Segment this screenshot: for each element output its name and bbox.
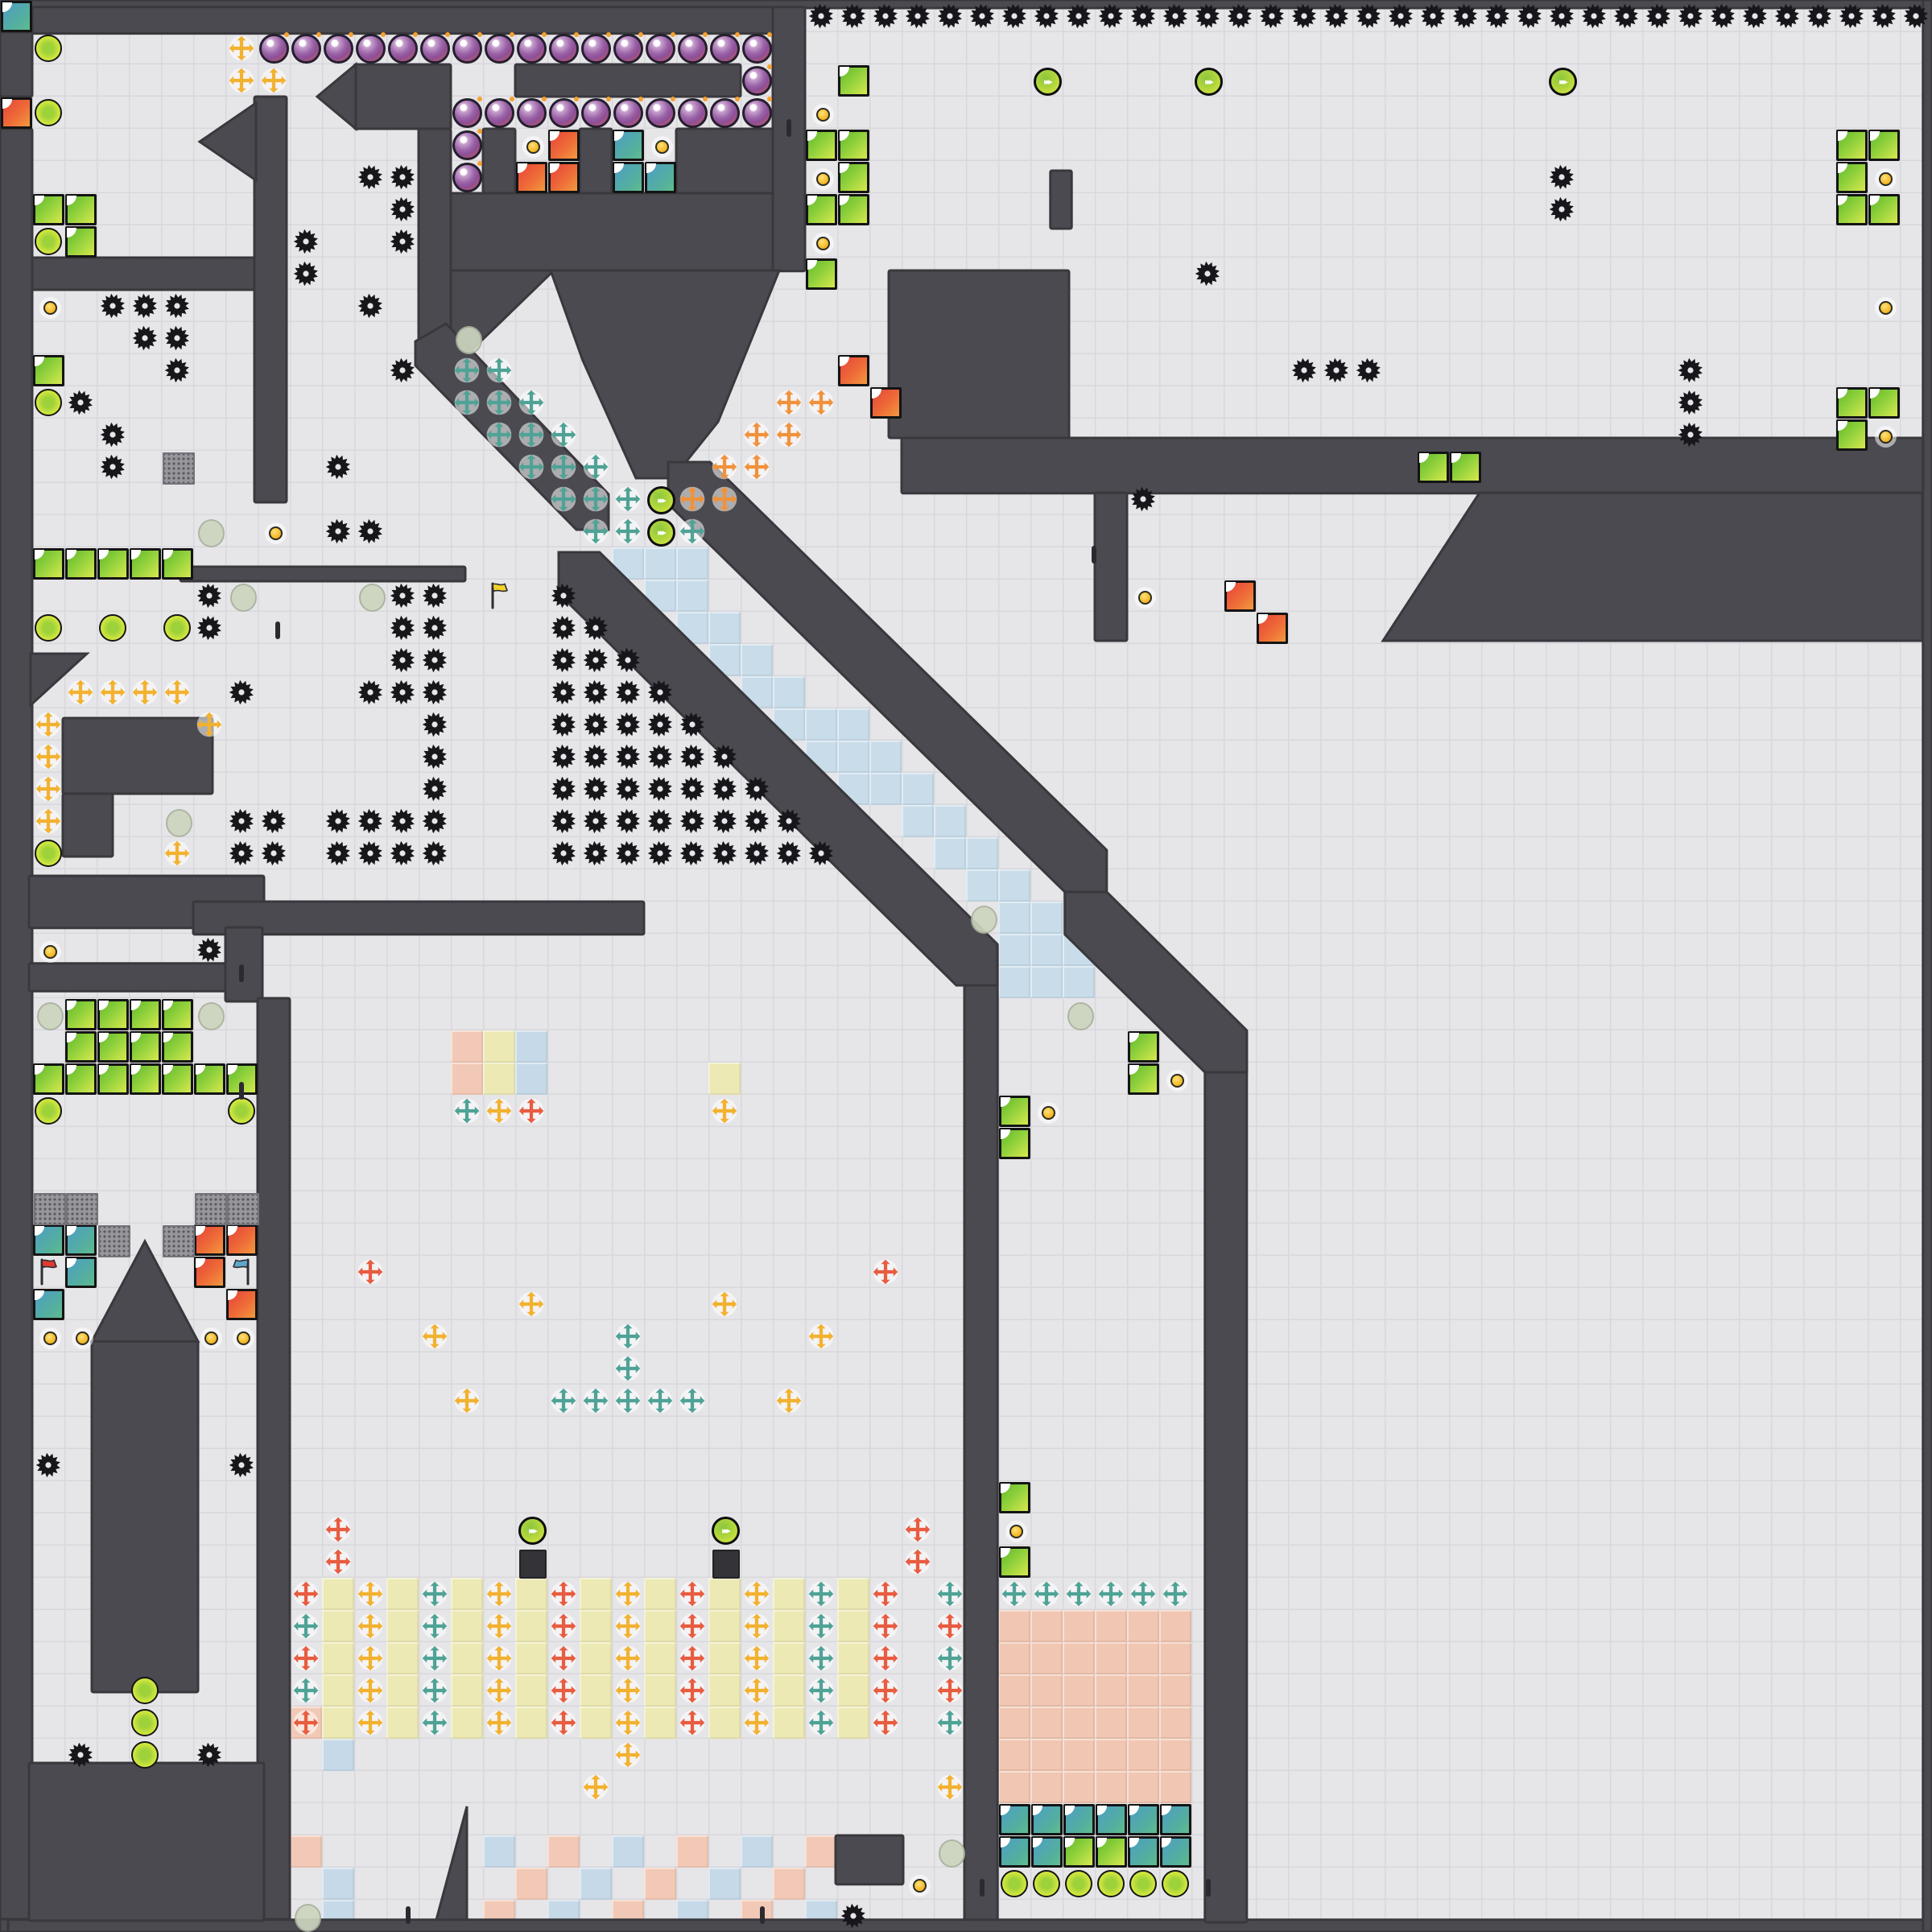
saw-blade-icon — [1290, 356, 1319, 385]
coin-dot — [1879, 430, 1893, 444]
move-cross-orange-icon — [775, 389, 803, 416]
green-block — [999, 1482, 1030, 1513]
bomb-icon — [678, 34, 708, 64]
move-cross-orange-icon — [711, 485, 738, 513]
move-cross-red-icon — [357, 1258, 384, 1286]
move-cross-yellow-icon — [485, 1097, 513, 1125]
saw-blade-icon — [1322, 2, 1351, 31]
saw-blade-icon — [420, 581, 449, 610]
move-cross-yellow-icon — [775, 1387, 803, 1414]
saw-blade-icon — [259, 807, 288, 836]
saw-blade-icon — [613, 742, 642, 771]
saw-blade-icon — [1193, 259, 1222, 288]
stone-block — [519, 1550, 547, 1579]
saw-blade-icon — [646, 839, 675, 868]
bomb-icon — [549, 98, 579, 128]
move-cross-orange-icon — [807, 389, 835, 416]
bomb-icon — [710, 98, 740, 128]
green-block — [1836, 194, 1868, 225]
move-cross-yellow-icon — [614, 1741, 642, 1769]
gold-orb — [1162, 1870, 1189, 1897]
gold-orb — [35, 228, 62, 255]
saw-blade-icon — [807, 2, 836, 31]
teal-block — [65, 1224, 97, 1256]
saw-blade-icon — [1354, 356, 1383, 385]
move-cross-yellow-icon — [163, 679, 191, 706]
move-cross-teal-icon — [679, 518, 706, 545]
green-block — [130, 1063, 161, 1095]
saw-blade-icon — [227, 807, 256, 836]
green-block — [162, 1031, 193, 1063]
coin-dot — [43, 1331, 57, 1345]
move-cross-red-icon — [550, 1580, 577, 1608]
green-block — [838, 162, 869, 193]
move-cross-teal-icon — [518, 453, 545, 481]
saw-blade-icon — [581, 678, 610, 707]
green-block — [33, 1063, 64, 1095]
green-block — [162, 1063, 193, 1095]
bomb-icon — [324, 34, 353, 64]
coin-dot — [1879, 301, 1893, 315]
door-slit — [1092, 546, 1096, 563]
door-slit — [239, 964, 244, 982]
saw-blade-icon — [646, 807, 675, 836]
grate-block — [98, 1225, 130, 1257]
saw-blade-icon — [356, 163, 385, 192]
move-cross-yellow-icon — [357, 1580, 384, 1608]
move-cross-yellow-icon — [228, 35, 255, 62]
move-cross-teal-icon — [421, 1709, 448, 1736]
green-block — [65, 1031, 97, 1063]
saw-blade-icon — [227, 678, 256, 707]
red-block — [1, 97, 32, 129]
green-block — [130, 548, 161, 580]
move-cross-yellow-icon — [614, 1645, 642, 1672]
ghost-orb — [37, 1002, 64, 1030]
level-map: ▸▸▸▸▸▸▸▸▸▸▸▸▸▸▸▸▸▸▸▸▸ — [0, 0, 1932, 1932]
move-cross-teal-icon — [582, 453, 609, 481]
saw-blade-icon — [420, 646, 449, 675]
saw-blade-icon — [549, 678, 578, 707]
move-cross-yellow-icon — [67, 679, 94, 706]
green-block — [130, 999, 161, 1030]
bomb-icon — [549, 34, 579, 64]
green-block — [97, 1063, 129, 1095]
saw-blade-icon — [420, 710, 449, 739]
move-cross-teal-icon — [1129, 1580, 1157, 1608]
coin-dot — [204, 1331, 218, 1345]
green-block — [1418, 452, 1449, 483]
red-flag-icon — [32, 1256, 64, 1288]
green-block — [999, 1128, 1030, 1159]
saw-blade-icon — [1354, 2, 1383, 31]
door-slit — [786, 119, 791, 137]
green-block — [806, 258, 837, 290]
saw-blade-icon — [1676, 388, 1705, 417]
grate-block — [195, 1193, 227, 1225]
green-block — [999, 1546, 1030, 1578]
move-cross-red-icon — [518, 1097, 545, 1125]
move-cross-red-icon — [550, 1612, 577, 1640]
move-cross-teal-icon — [453, 389, 481, 416]
saw-blade-icon — [1064, 2, 1093, 31]
teal-block — [1128, 1804, 1159, 1835]
saw-blade-icon — [1773, 2, 1802, 31]
coin-dot — [526, 140, 540, 154]
saw-blade-icon — [742, 839, 771, 868]
saw-blade-icon — [935, 2, 964, 31]
move-cross-teal-icon — [936, 1645, 964, 1672]
move-cross-teal-icon — [807, 1709, 835, 1736]
move-cross-teal-icon — [582, 1387, 609, 1414]
blue-flag-icon — [225, 1256, 258, 1288]
saw-blade-icon — [98, 420, 127, 449]
move-cross-teal-icon — [614, 1323, 642, 1350]
saw-blade-icon — [420, 613, 449, 642]
bomb-icon — [742, 98, 772, 128]
saw-blade-icon — [356, 517, 385, 546]
grate-block — [163, 1225, 195, 1257]
gold-orb — [131, 1741, 159, 1769]
saw-blade-icon — [1547, 2, 1576, 31]
green-block — [1128, 1031, 1159, 1063]
bomb-icon — [581, 34, 611, 64]
gold-orb — [1129, 1870, 1157, 1897]
move-cross-yellow-icon — [743, 1612, 770, 1640]
saw-blade-icon — [678, 839, 707, 868]
saw-blade-icon — [549, 710, 578, 739]
saw-blade-icon — [678, 774, 707, 803]
saw-blade-icon — [388, 227, 417, 256]
move-cross-yellow-icon — [936, 1773, 964, 1801]
saw-blade-icon — [356, 839, 385, 868]
coin-dot — [816, 172, 830, 186]
teal-block — [613, 162, 644, 193]
saw-blade-icon — [678, 807, 707, 836]
move-cross-yellow-icon — [357, 1612, 384, 1640]
red-block — [1257, 613, 1288, 644]
saw-blade-icon — [259, 839, 288, 868]
teal-block — [65, 1257, 97, 1288]
teal-block — [1, 1, 32, 32]
saw-blade-icon — [1869, 2, 1898, 31]
move-cross-yellow-icon — [614, 1580, 642, 1608]
teal-block — [1160, 1804, 1191, 1835]
saw-blade-icon — [324, 839, 353, 868]
coin-dot — [1170, 1074, 1184, 1088]
saw-blade-icon — [163, 291, 192, 320]
move-cross-teal-icon — [453, 357, 481, 384]
ghost-orb — [198, 519, 225, 547]
move-cross-red-icon — [324, 1516, 352, 1543]
saw-blade-icon — [549, 613, 578, 642]
green-block — [1836, 130, 1868, 161]
teal-block — [1160, 1836, 1191, 1868]
move-cross-red-icon — [872, 1612, 899, 1640]
move-cross-orange-icon — [679, 485, 706, 513]
saw-blade-icon — [1032, 2, 1061, 31]
green-block — [1836, 162, 1868, 193]
saw-blade-icon — [356, 807, 385, 836]
saw-blade-icon — [581, 710, 610, 739]
saw-blade-icon — [839, 2, 868, 31]
move-cross-teal-icon — [614, 485, 642, 513]
gold-orb — [35, 35, 62, 62]
green-block — [65, 548, 97, 580]
saw-blade-icon — [1418, 2, 1447, 31]
saw-blade-icon — [549, 774, 578, 803]
move-cross-red-icon — [904, 1516, 931, 1543]
saw-blade-icon — [420, 742, 449, 771]
saw-blade-icon — [98, 452, 127, 481]
saw-blade-icon — [66, 388, 95, 417]
coin-dot — [76, 1331, 89, 1345]
move-cross-teal-icon — [550, 421, 577, 448]
saw-blade-icon — [613, 678, 642, 707]
green-block — [130, 1031, 161, 1063]
move-cross-teal-icon — [421, 1645, 448, 1672]
move-cross-yellow-icon — [35, 807, 62, 835]
game-screenshot: ▸▸▸▸▸▸▸▸▸▸▸▸▸▸▸▸▸▸▸▸▸ — [0, 0, 1932, 1932]
saw-blade-icon — [581, 742, 610, 771]
green-block — [1063, 1836, 1095, 1868]
green-block — [1868, 387, 1900, 419]
saw-blade-icon — [678, 710, 707, 739]
saw-blade-icon — [163, 324, 192, 353]
bomb-icon — [485, 34, 514, 64]
saw-blade-icon — [1740, 2, 1769, 31]
move-cross-yellow-icon — [35, 711, 62, 738]
green-block — [97, 999, 129, 1030]
move-cross-teal-icon — [1001, 1580, 1028, 1608]
teal-block — [645, 162, 676, 193]
saw-blade-icon — [710, 807, 739, 836]
move-cross-red-icon — [679, 1612, 706, 1640]
ghost-orb — [456, 326, 482, 354]
saw-blade-icon — [388, 807, 417, 836]
saw-blade-icon — [613, 646, 642, 675]
green-block — [65, 999, 97, 1030]
saw-blade-icon — [388, 356, 417, 385]
ghost-orb — [359, 584, 386, 612]
green-block — [33, 194, 64, 225]
move-cross-red-icon — [872, 1709, 899, 1736]
move-cross-orange-icon — [711, 453, 738, 481]
coin-dot — [655, 140, 669, 154]
move-cross-red-icon — [679, 1677, 706, 1704]
ghost-orb — [295, 1904, 321, 1932]
coin-dot — [1009, 1525, 1023, 1538]
move-cross-teal-icon — [421, 1580, 448, 1608]
move-cross-teal-icon — [485, 357, 513, 384]
move-cross-teal-icon — [646, 1387, 674, 1414]
gold-orb — [35, 840, 62, 867]
move-cross-yellow-icon — [743, 1677, 770, 1704]
saw-blade-icon — [1096, 2, 1125, 31]
saw-blade-icon — [1644, 2, 1673, 31]
green-block — [162, 999, 193, 1030]
move-cross-red-icon — [679, 1645, 706, 1672]
saw-blade-icon — [710, 774, 739, 803]
teal-block — [999, 1836, 1030, 1868]
gold-orb — [35, 1097, 62, 1125]
move-cross-yellow-icon — [743, 1645, 770, 1672]
move-cross-red-icon — [679, 1709, 706, 1736]
coin-dot — [816, 108, 830, 122]
red-block — [1224, 580, 1256, 612]
red-block — [226, 1224, 258, 1256]
saw-blade-icon — [742, 774, 771, 803]
move-cross-teal-icon — [485, 421, 513, 448]
saw-blade-icon — [1676, 2, 1705, 31]
move-cross-yellow-icon — [743, 1709, 770, 1736]
saw-blade-icon — [98, 291, 127, 320]
green-block — [1868, 194, 1900, 225]
saw-blade-icon — [1612, 2, 1641, 31]
move-cross-teal-icon — [1033, 1580, 1060, 1608]
bomb-icon — [452, 163, 482, 192]
teal-block — [613, 130, 644, 161]
saw-blade-icon — [549, 742, 578, 771]
boost-orb-icon: ▸▸▸ — [647, 518, 675, 547]
bomb-icon — [388, 34, 418, 64]
saw-blade-icon — [549, 646, 578, 675]
saw-blade-icon — [1193, 2, 1222, 31]
saw-blade-icon — [356, 291, 385, 320]
gold-orb — [1065, 1870, 1092, 1897]
saw-blade-icon — [742, 807, 771, 836]
saw-blade-icon — [1579, 2, 1608, 31]
stone-block — [712, 1550, 740, 1579]
saw-blade-icon — [1322, 356, 1351, 385]
ghost-orb — [230, 584, 257, 612]
saw-blade-icon — [1547, 163, 1576, 192]
move-cross-yellow-icon — [743, 1580, 770, 1608]
move-cross-teal-icon — [936, 1580, 964, 1608]
move-cross-orange-icon — [743, 453, 770, 481]
saw-blade-icon — [195, 581, 224, 610]
saw-blade-icon — [1515, 2, 1544, 31]
saw-blade-icon — [163, 356, 192, 385]
green-block — [65, 194, 97, 225]
saw-blade-icon — [549, 807, 578, 836]
bomb-icon — [742, 66, 772, 96]
bomb-icon — [613, 98, 643, 128]
gold-orb — [163, 614, 191, 642]
bomb-icon — [613, 34, 643, 64]
move-cross-red-icon — [936, 1677, 964, 1704]
saw-blade-icon — [1483, 2, 1512, 31]
saw-blade-icon — [646, 678, 675, 707]
move-cross-teal-icon — [518, 421, 545, 448]
saw-blade-icon — [420, 839, 449, 868]
gold-orb — [228, 1097, 255, 1125]
saw-blade-icon — [613, 839, 642, 868]
saw-blade-icon — [195, 613, 224, 642]
teal-block — [1063, 1804, 1095, 1835]
saw-blade-icon — [1000, 2, 1029, 31]
saw-blade-icon — [710, 742, 739, 771]
move-cross-teal-icon — [1065, 1580, 1092, 1608]
move-cross-teal-icon — [1162, 1580, 1189, 1608]
move-cross-teal-icon — [807, 1580, 835, 1608]
move-cross-orange-icon — [743, 421, 770, 448]
bomb-icon — [646, 98, 675, 128]
move-cross-yellow-icon — [99, 679, 126, 706]
move-cross-yellow-icon — [357, 1709, 384, 1736]
saw-blade-icon — [66, 1740, 95, 1769]
move-cross-yellow-icon — [485, 1612, 513, 1640]
move-cross-yellow-icon — [582, 1773, 609, 1801]
move-cross-teal-icon — [614, 1355, 642, 1382]
green-block — [1096, 1836, 1127, 1868]
saw-blade-icon — [291, 227, 320, 256]
saw-blade-icon — [613, 774, 642, 803]
gold-orb — [35, 389, 62, 416]
saw-blade-icon — [1451, 2, 1480, 31]
door-slit — [275, 621, 280, 639]
green-block — [33, 355, 64, 386]
teal-block — [1031, 1836, 1063, 1868]
door-slit — [406, 1906, 411, 1924]
saw-blade-icon — [774, 807, 803, 836]
saw-blade-icon — [1547, 195, 1576, 224]
red-block — [548, 162, 580, 193]
green-block — [838, 130, 869, 161]
move-cross-red-icon — [292, 1645, 320, 1672]
green-block — [806, 194, 837, 225]
saw-blade-icon — [774, 839, 803, 868]
bomb-icon — [356, 34, 386, 64]
green-block — [999, 1096, 1030, 1127]
gold-orb — [131, 1677, 159, 1704]
move-cross-teal-icon — [1097, 1580, 1125, 1608]
bomb-icon — [259, 34, 289, 64]
move-cross-yellow-icon — [228, 67, 255, 94]
move-cross-teal-icon — [485, 389, 513, 416]
green-block — [97, 1031, 129, 1063]
ghost-orb — [971, 906, 997, 934]
saw-blade-icon — [1161, 2, 1190, 31]
boost-orb-icon: ▸▸▸ — [1549, 68, 1577, 96]
move-cross-red-icon — [872, 1677, 899, 1704]
saw-blade-icon — [646, 742, 675, 771]
teal-block — [1128, 1836, 1159, 1868]
move-cross-red-icon — [550, 1645, 577, 1672]
saw-blade-icon — [871, 2, 900, 31]
red-block — [516, 162, 547, 193]
red-block — [548, 130, 580, 161]
move-cross-yellow-icon — [485, 1580, 513, 1608]
saw-blade-icon — [1290, 2, 1319, 31]
green-block — [806, 130, 837, 161]
bomb-icon — [452, 130, 482, 160]
bomb-icon — [742, 34, 772, 64]
gold-orb — [99, 614, 126, 642]
bomb-icon — [710, 34, 740, 64]
saw-blade-icon — [1676, 356, 1705, 385]
move-cross-teal-icon — [614, 518, 642, 545]
saw-blade-icon — [324, 517, 353, 546]
saw-blade-icon — [839, 1901, 868, 1930]
saw-blade-icon — [388, 195, 417, 224]
bomb-icon — [291, 34, 321, 64]
move-cross-teal-icon — [518, 389, 545, 416]
bomb-icon — [485, 98, 514, 128]
gold-orb — [1033, 1870, 1060, 1897]
green-block — [1450, 452, 1481, 483]
bomb-icon — [581, 98, 611, 128]
